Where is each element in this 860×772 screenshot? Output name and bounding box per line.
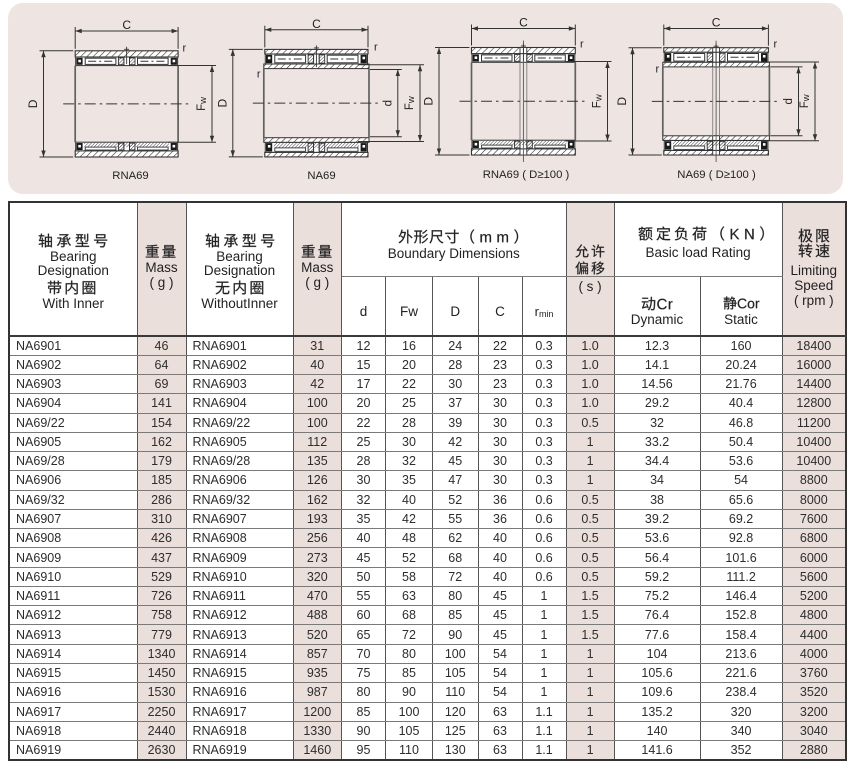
- svg-text:r: r: [774, 39, 778, 51]
- svg-text:D: D: [215, 98, 229, 107]
- svg-text:C: C: [122, 18, 131, 32]
- svg-text:D: D: [26, 99, 40, 108]
- svg-text:C: C: [312, 17, 321, 31]
- svg-text:r: r: [257, 69, 261, 81]
- svg-text:D: D: [615, 97, 629, 106]
- svg-text:Fw: Fw: [799, 94, 812, 108]
- svg-text:NA69 ( D≥100 ): NA69 ( D≥100 ): [677, 169, 756, 181]
- svg-text:RNA69 ( D≥100 ): RNA69 ( D≥100 ): [483, 169, 570, 181]
- svg-text:r: r: [656, 64, 660, 76]
- svg-text:Fw: Fw: [592, 94, 605, 108]
- svg-text:NA69: NA69: [307, 170, 335, 182]
- svg-text:RNA69: RNA69: [112, 170, 148, 182]
- svg-text:r: r: [183, 43, 187, 55]
- svg-text:C: C: [712, 15, 721, 29]
- svg-text:Fw: Fw: [196, 97, 209, 111]
- svg-text:D: D: [422, 97, 436, 106]
- svg-text:r: r: [580, 39, 584, 51]
- svg-text:d: d: [382, 100, 394, 106]
- svg-text:Fw: Fw: [404, 96, 417, 110]
- svg-text:r: r: [374, 42, 378, 54]
- svg-text:C: C: [519, 15, 528, 29]
- svg-text:d: d: [783, 98, 795, 104]
